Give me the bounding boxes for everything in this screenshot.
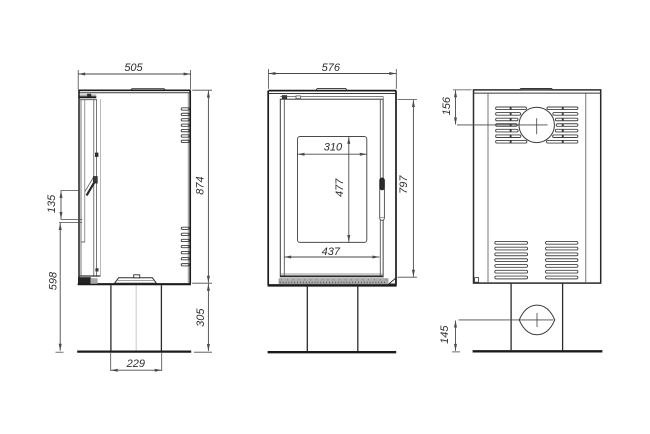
svg-text:576: 576 xyxy=(322,62,341,74)
svg-text:229: 229 xyxy=(126,358,145,370)
svg-text:156: 156 xyxy=(441,96,453,115)
svg-text:305: 305 xyxy=(195,308,207,327)
svg-text:437: 437 xyxy=(322,246,341,258)
svg-text:505: 505 xyxy=(124,62,143,74)
svg-text:310: 310 xyxy=(324,141,343,153)
svg-text:477: 477 xyxy=(334,178,346,197)
svg-text:135: 135 xyxy=(46,194,58,213)
svg-text:797: 797 xyxy=(398,175,410,194)
svg-text:598: 598 xyxy=(48,271,60,290)
svg-text:145: 145 xyxy=(439,325,451,344)
svg-text:874: 874 xyxy=(195,176,207,194)
